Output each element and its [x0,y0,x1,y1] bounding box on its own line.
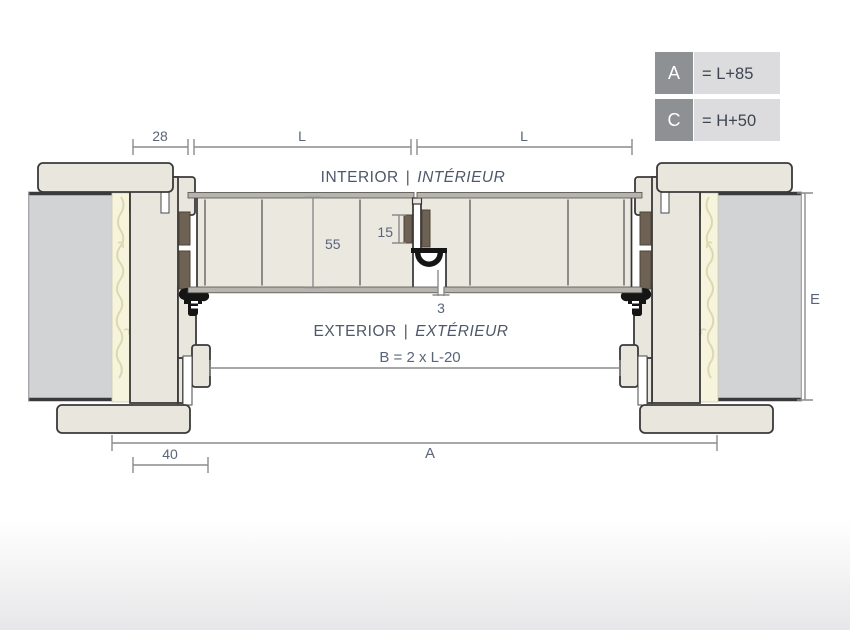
interior-label-fr: INTÉRIEUR [417,169,505,186]
dim-leaf-gap: 3 [437,300,445,316]
legend-value-A: = L+85 [702,65,753,83]
door-section-diagram: 28 L L 55 15 3 B = 2 x L-20 A 40 E INTER… [0,0,850,630]
meeting-seal-block-right [422,210,430,247]
dim-frame-offset: 28 [152,128,168,144]
door-leaf-right [413,192,643,292]
trim-groove-top [161,190,169,213]
dim-frame-depth: 40 [162,446,178,462]
frame-jamb [130,177,178,403]
leaf-face-interior [188,192,414,198]
architrave-interior [38,163,173,192]
frame-foot [178,358,183,403]
dim-leaf-width-right: L [520,128,528,144]
legend-key-C: C [668,110,681,130]
legend-key-A: A [668,63,680,83]
background-fade [0,520,850,630]
gasket-slit [191,306,198,309]
right-jamb-assembly [620,163,802,433]
wall-section [28,192,112,401]
dim-leaf-width-left: L [298,128,306,144]
left-leaf-core [197,196,413,289]
meeting-stile-lip [413,198,422,204]
legend-value-C: = H+50 [702,112,756,130]
meeting-seal-block-left [404,215,412,243]
label-separator: | [406,169,411,186]
leaf-face-interior [417,192,642,198]
gasket-slit [191,301,198,304]
hinge-block-lower [179,251,190,289]
astragal-mount [411,248,447,253]
frame-exterior-stop [192,345,210,387]
architrave-exterior [57,405,190,433]
dim-clear-opening: B = 2 x L-20 [379,349,460,366]
left-jamb-assembly [28,163,210,433]
label-separator: | [404,323,409,340]
interior-label-en: INTERIOR [321,169,399,186]
hinge-block-upper [179,212,190,245]
dim-overall-width: A [425,445,435,462]
exterior-label-fr: EXTÉRIEUR [415,323,508,340]
dim-door-thickness: 55 [325,236,341,252]
trim-groove-bottom [183,356,192,405]
exterior-label-en: EXTERIOR [314,323,397,340]
dim-seal-height: 15 [377,224,393,240]
dim-wall-thickness: E [810,291,820,308]
right-leaf-core [421,196,632,289]
drawing-canvas: 28 L L 55 15 3 B = 2 x L-20 A 40 E INTER… [0,0,850,630]
leaf-face-exterior [444,287,642,293]
